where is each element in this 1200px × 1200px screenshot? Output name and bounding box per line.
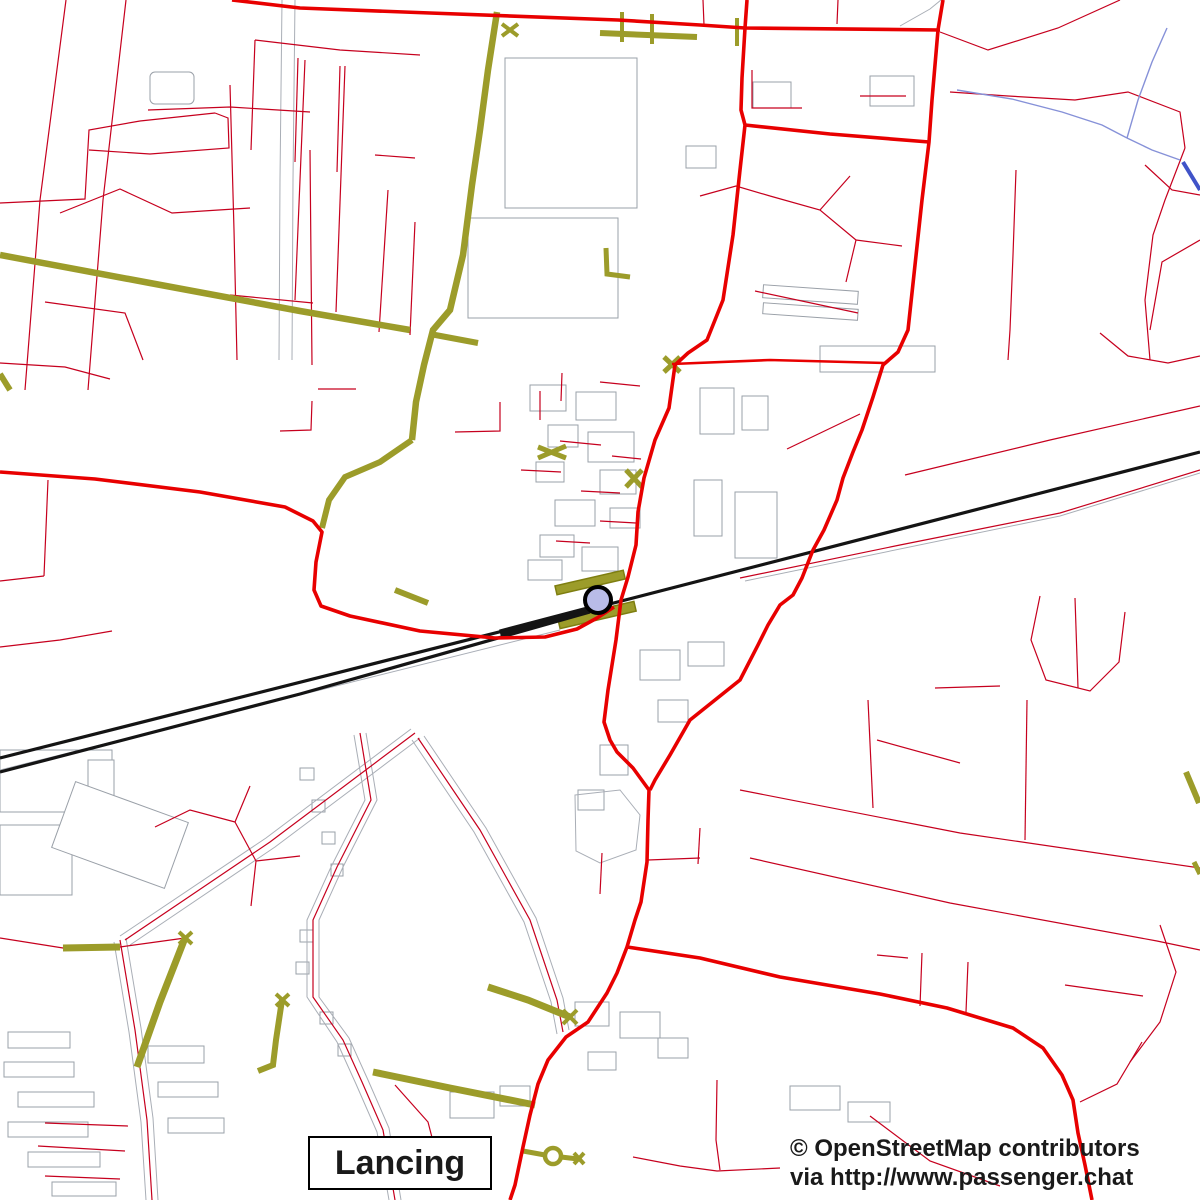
streams	[957, 28, 1200, 190]
place-label-text: Lancing	[335, 1144, 465, 1183]
attribution-line1: © OpenStreetMap contributors	[790, 1134, 1190, 1163]
map-render	[0, 0, 1200, 1200]
place-label: Lancing	[308, 1136, 492, 1190]
mini-roundabout-ring	[545, 1148, 561, 1164]
map-attribution: © OpenStreetMap contributors via http://…	[790, 1134, 1190, 1192]
station-marker[interactable]	[585, 587, 611, 613]
attribution-line2: via http://www.passenger.chat	[790, 1163, 1190, 1192]
map-canvas[interactable]: Lancing © OpenStreetMap contributors via…	[0, 0, 1200, 1200]
